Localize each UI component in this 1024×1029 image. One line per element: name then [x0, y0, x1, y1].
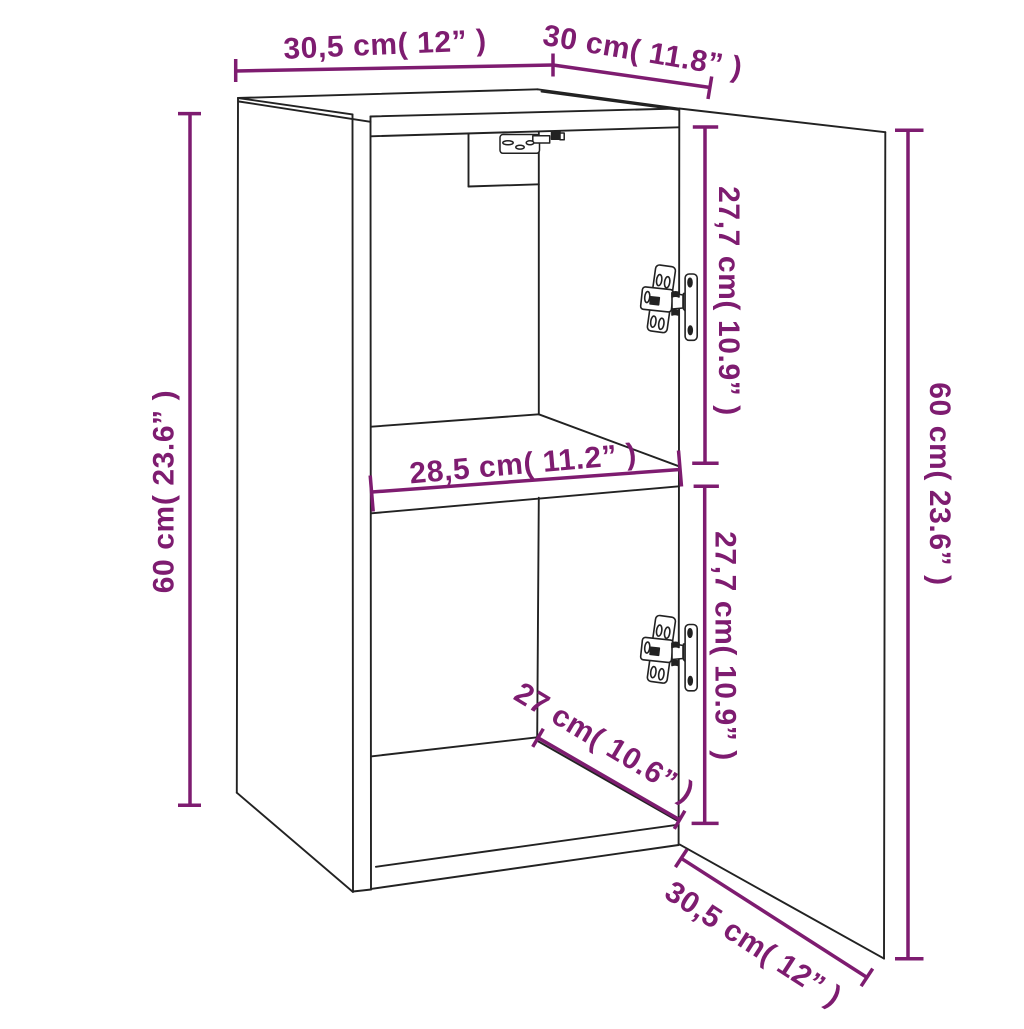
svg-text:27,7 cm( 10.9” ): 27,7 cm( 10.9” )	[712, 186, 745, 416]
svg-text:60 cm( 23.6” ): 60 cm( 23.6” )	[923, 382, 956, 586]
svg-text:27,7 cm( 10.9” ): 27,7 cm( 10.9” )	[709, 531, 742, 761]
svg-text:60 cm( 23.6” ): 60 cm( 23.6” )	[148, 390, 181, 594]
